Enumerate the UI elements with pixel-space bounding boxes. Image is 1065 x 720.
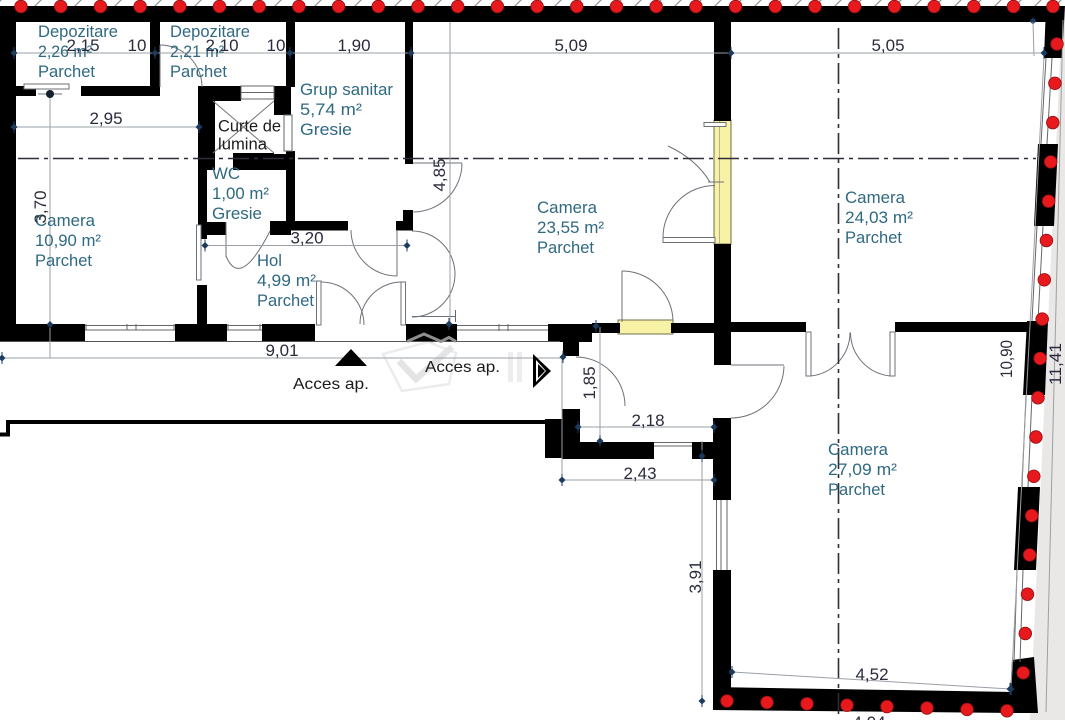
svg-text:Curte de: Curte de	[218, 117, 281, 136]
svg-text:Parchet: Parchet	[38, 62, 95, 81]
svg-text:24,03 m²: 24,03 m²	[845, 208, 913, 227]
svg-text:1,85: 1,85	[580, 366, 599, 399]
svg-text:11,41: 11,41	[1046, 343, 1065, 385]
svg-text:27,09 m²: 27,09 m²	[828, 460, 897, 479]
svg-text:Gresie: Gresie	[300, 120, 352, 139]
svg-text:Grup sanitar: Grup sanitar	[300, 80, 393, 99]
svg-text:Parchet: Parchet	[845, 228, 902, 247]
svg-text:Parchet: Parchet	[537, 238, 594, 257]
svg-text:Parchet: Parchet	[257, 291, 314, 310]
svg-text:WC: WC	[212, 164, 240, 183]
svg-text:5,05: 5,05	[871, 36, 904, 55]
svg-text:10: 10	[128, 36, 147, 55]
svg-text:2,10: 2,10	[205, 36, 238, 55]
svg-text:Gresie: Gresie	[212, 204, 262, 223]
svg-text:4,52: 4,52	[855, 665, 888, 684]
svg-text:Hol: Hol	[257, 251, 282, 270]
svg-text:1,00 m²: 1,00 m²	[212, 184, 269, 203]
svg-text:3,70: 3,70	[31, 190, 50, 223]
svg-text:4,99 m²: 4,99 m²	[257, 271, 316, 290]
svg-text:2,15: 2,15	[66, 36, 99, 55]
svg-text:Parchet: Parchet	[828, 480, 885, 499]
svg-text:Acces ap.: Acces ap.	[293, 376, 369, 393]
svg-text:2,95: 2,95	[89, 109, 122, 128]
svg-text:lumina: lumina	[218, 135, 268, 154]
svg-text:10,90 m²: 10,90 m²	[35, 231, 101, 250]
svg-text:Camera: Camera	[537, 198, 598, 217]
svg-text:5,74 m²: 5,74 m²	[300, 100, 362, 119]
svg-text:2,43: 2,43	[623, 464, 656, 483]
svg-text:10: 10	[267, 36, 286, 55]
svg-text:5,09: 5,09	[554, 36, 587, 55]
svg-text:Parchet: Parchet	[170, 62, 227, 81]
svg-text:2,18: 2,18	[631, 411, 664, 430]
svg-text:1,90: 1,90	[337, 36, 370, 55]
svg-text:3,91: 3,91	[686, 560, 705, 593]
svg-text:Acces ap.: Acces ap.	[425, 359, 500, 376]
svg-text:4,04: 4,04	[852, 713, 885, 720]
svg-text:3,20: 3,20	[290, 229, 323, 248]
svg-text:Camera: Camera	[828, 440, 889, 459]
svg-text:4,85: 4,85	[430, 158, 449, 191]
svg-text:9,01: 9,01	[265, 341, 298, 360]
svg-text:Camera: Camera	[845, 188, 906, 207]
svg-text:10,90: 10,90	[997, 340, 1016, 378]
svg-text:23,55 m²: 23,55 m²	[537, 218, 604, 237]
svg-text:Parchet: Parchet	[35, 251, 92, 270]
